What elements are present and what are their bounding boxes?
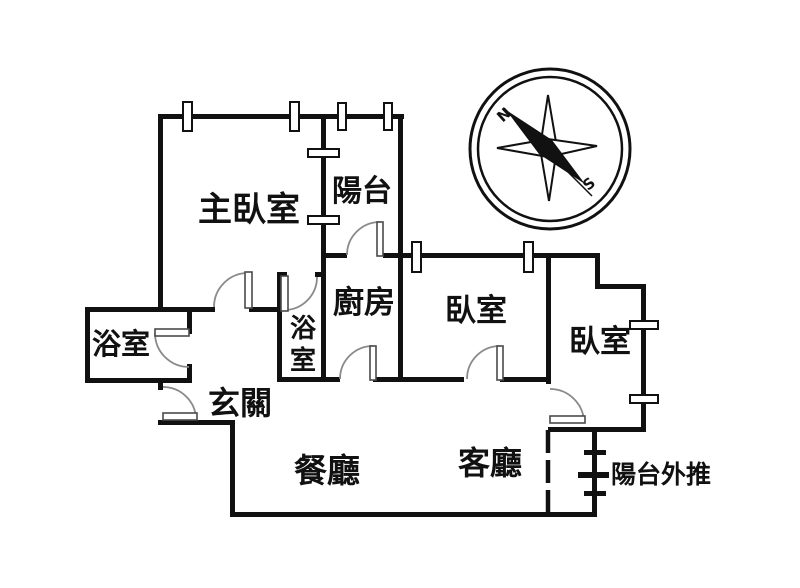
door-arc-bathroom-small <box>284 277 317 310</box>
compass-south-label: S <box>579 174 599 195</box>
wall-bottom <box>230 512 597 517</box>
wall-step-horizontal <box>595 284 646 289</box>
window <box>308 216 339 224</box>
wall-kitchen-bottom-left <box>277 377 340 382</box>
window <box>524 242 533 272</box>
label-entry: 玄關 <box>208 384 272 422</box>
floor-plan-canvas: 主臥室 陽台 廚房 浴室 浴 室 玄關 臥室 臥室 餐廳 客廳 陽台外推 N S <box>0 0 800 588</box>
window <box>183 102 192 131</box>
door-arc-kitchen <box>340 346 373 379</box>
window <box>290 102 299 131</box>
label-living: 客廳 <box>458 444 522 482</box>
window <box>384 103 392 130</box>
door-leaf-balcony <box>377 222 383 256</box>
wall-entry-stub <box>158 378 163 390</box>
wall-master-left <box>158 114 163 311</box>
window <box>412 242 421 272</box>
wall-bath1-left <box>85 307 90 383</box>
door-leaf-kitchen <box>370 346 376 380</box>
balcony-extension-tick <box>578 472 609 478</box>
door-arc-bathroom-left <box>155 333 189 367</box>
label-bathroom-small-char1: 浴 <box>290 314 317 344</box>
door-arc-balcony <box>347 222 380 255</box>
wall-kitchen-bottom-right <box>373 377 464 382</box>
window <box>308 149 339 157</box>
balcony-extension-tick <box>584 491 606 496</box>
wall-master-bottom-left <box>85 307 215 312</box>
wall-bedroom1-bottom <box>500 377 551 382</box>
door-arc-bedroom-middle <box>467 346 500 379</box>
door-leaf-bedroom-middle <box>497 346 503 380</box>
windows <box>183 102 658 496</box>
compass-north-label: N <box>493 104 514 126</box>
wall-bedroom2-bottom <box>548 427 646 432</box>
wall-left-step <box>230 420 235 517</box>
wall-bedroom-divider <box>546 253 551 384</box>
window <box>630 321 658 329</box>
label-kitchen: 廚房 <box>333 285 395 321</box>
wall-bath2-top-right <box>315 272 326 277</box>
window <box>338 103 346 130</box>
door-leaf-master <box>245 272 252 308</box>
wall-bath1-bottom <box>85 378 192 383</box>
door-leaf-bathroom-left <box>155 329 189 336</box>
door-leaf-bathroom-small <box>281 276 288 311</box>
label-bedroom-middle: 臥室 <box>445 293 507 329</box>
balcony-extension-tick <box>584 450 606 455</box>
wall-top <box>158 114 404 119</box>
label-balcony: 陽台 <box>332 174 392 209</box>
floor-plan-drawing: 主臥室 陽台 廚房 浴室 浴 室 玄關 臥室 臥室 餐廳 客廳 陽台外推 N S <box>0 0 800 588</box>
door-arc-master <box>214 273 248 307</box>
label-bathroom-small-char2: 室 <box>290 345 316 376</box>
window <box>630 395 658 403</box>
label-balcony-extension: 陽台外推 <box>611 460 711 489</box>
wall-step-vertical <box>595 253 600 289</box>
label-master-bedroom: 主臥室 <box>198 190 300 230</box>
door-leaf-entry <box>163 413 197 420</box>
compass: N S <box>470 69 630 229</box>
wall-right <box>641 284 646 432</box>
label-bathroom-left: 浴室 <box>92 327 150 361</box>
label-bedroom-right: 臥室 <box>569 324 631 360</box>
wall-kitchen-right <box>398 114 403 382</box>
door-leaf-bedroom-right <box>550 416 585 423</box>
label-dining: 餐廳 <box>294 451 360 490</box>
